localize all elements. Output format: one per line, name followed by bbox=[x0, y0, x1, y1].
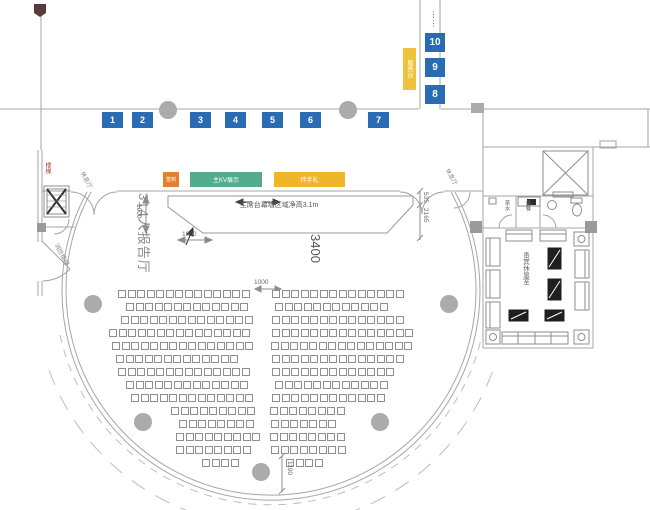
seat bbox=[137, 290, 145, 298]
seat bbox=[361, 303, 369, 311]
seat bbox=[221, 381, 229, 389]
logo-icon bbox=[34, 4, 46, 17]
seat bbox=[126, 303, 134, 311]
seat bbox=[282, 368, 290, 376]
seat bbox=[367, 355, 375, 363]
seat bbox=[160, 342, 168, 350]
seat bbox=[205, 433, 213, 441]
seat bbox=[128, 368, 136, 376]
pantry-label: 备餐 bbox=[524, 200, 530, 211]
seat bbox=[310, 368, 318, 376]
seat bbox=[376, 342, 384, 350]
seat bbox=[358, 394, 366, 402]
seat bbox=[185, 368, 193, 376]
seat bbox=[386, 368, 394, 376]
seat bbox=[147, 368, 155, 376]
seat bbox=[367, 368, 375, 376]
seat bbox=[156, 368, 164, 376]
seat bbox=[202, 459, 210, 467]
seat bbox=[214, 329, 222, 337]
seat bbox=[118, 368, 126, 376]
seat bbox=[145, 303, 153, 311]
seat bbox=[116, 355, 124, 363]
elevator-shaft bbox=[543, 151, 588, 197]
seat bbox=[173, 355, 181, 363]
seat bbox=[327, 407, 335, 415]
seat bbox=[396, 355, 404, 363]
seat bbox=[217, 342, 225, 350]
seat bbox=[145, 381, 153, 389]
seat bbox=[200, 407, 208, 415]
seat bbox=[272, 355, 280, 363]
seat bbox=[131, 316, 139, 324]
seat bbox=[147, 290, 155, 298]
seat bbox=[318, 433, 326, 441]
seat bbox=[342, 303, 350, 311]
seat bbox=[319, 420, 327, 428]
seat bbox=[179, 342, 187, 350]
seat bbox=[233, 433, 241, 441]
seat bbox=[275, 381, 283, 389]
seat bbox=[214, 446, 222, 454]
coffee-tables bbox=[509, 248, 564, 321]
seat bbox=[377, 329, 385, 337]
seat bbox=[300, 342, 308, 350]
seat bbox=[348, 290, 356, 298]
seat bbox=[164, 355, 172, 363]
zone-service-desk: 服务台 bbox=[403, 48, 416, 90]
seat bbox=[351, 303, 359, 311]
seat bbox=[396, 290, 404, 298]
seat bbox=[320, 368, 328, 376]
seat bbox=[204, 290, 212, 298]
seat bbox=[243, 446, 251, 454]
seat bbox=[198, 342, 206, 350]
booth-3: 3 bbox=[190, 112, 211, 128]
seat bbox=[395, 342, 403, 350]
seat bbox=[272, 329, 280, 337]
seat bbox=[119, 329, 127, 337]
seat bbox=[109, 329, 117, 337]
dim-stage-right-lower: 2165 bbox=[422, 208, 429, 222]
seat bbox=[300, 446, 308, 454]
seat bbox=[141, 394, 149, 402]
seat bbox=[245, 394, 253, 402]
booth-8: 8 bbox=[425, 85, 445, 104]
seat bbox=[270, 433, 278, 441]
seat bbox=[319, 342, 327, 350]
seat bbox=[300, 420, 308, 428]
booth-4: 4 bbox=[225, 112, 246, 128]
seat bbox=[342, 381, 350, 389]
seat bbox=[226, 394, 234, 402]
seat bbox=[157, 329, 165, 337]
seat bbox=[377, 355, 385, 363]
seat bbox=[338, 342, 346, 350]
seat bbox=[195, 446, 203, 454]
seat bbox=[183, 381, 191, 389]
seat bbox=[315, 459, 323, 467]
seat bbox=[223, 290, 231, 298]
seat bbox=[186, 446, 194, 454]
seat bbox=[281, 342, 289, 350]
corridor-ellipsis: ⋮⋮ bbox=[429, 10, 437, 28]
seat bbox=[282, 316, 290, 324]
tea-room-label: 茶水 bbox=[503, 200, 509, 211]
seat bbox=[291, 368, 299, 376]
seat bbox=[217, 394, 225, 402]
seat bbox=[227, 420, 235, 428]
seat bbox=[310, 394, 318, 402]
seat bbox=[236, 394, 244, 402]
stage-height-note: 主席台幕墙区域净高3.1m bbox=[213, 202, 345, 209]
seat bbox=[339, 355, 347, 363]
seat bbox=[238, 407, 246, 415]
seat bbox=[351, 381, 359, 389]
seat bbox=[235, 316, 243, 324]
seat bbox=[301, 329, 309, 337]
seat bbox=[169, 342, 177, 350]
seat bbox=[320, 355, 328, 363]
seat bbox=[280, 407, 288, 415]
dim-stage-right-upper: 535 bbox=[422, 192, 429, 203]
booth-6: 6 bbox=[300, 112, 321, 128]
seat bbox=[329, 316, 337, 324]
seat bbox=[155, 381, 163, 389]
seat bbox=[221, 303, 229, 311]
seat bbox=[305, 459, 313, 467]
seat bbox=[166, 290, 174, 298]
seat bbox=[197, 316, 205, 324]
seat bbox=[309, 342, 317, 350]
seat bbox=[141, 342, 149, 350]
seat bbox=[304, 381, 312, 389]
seat bbox=[282, 329, 290, 337]
seat bbox=[140, 316, 148, 324]
seat bbox=[404, 342, 412, 350]
seat bbox=[174, 303, 182, 311]
seat bbox=[193, 381, 201, 389]
seat bbox=[171, 407, 179, 415]
seat bbox=[137, 368, 145, 376]
seat bbox=[169, 316, 177, 324]
seat bbox=[320, 290, 328, 298]
seat bbox=[296, 459, 304, 467]
seat bbox=[186, 433, 194, 441]
seat bbox=[339, 329, 347, 337]
booth-10: 10 bbox=[425, 33, 445, 52]
seat bbox=[174, 381, 182, 389]
seat bbox=[150, 394, 158, 402]
seat bbox=[370, 381, 378, 389]
seat bbox=[337, 407, 345, 415]
seat bbox=[232, 290, 240, 298]
seat bbox=[252, 433, 260, 441]
seat bbox=[212, 459, 220, 467]
booth-1: 1 bbox=[102, 112, 123, 128]
seat bbox=[339, 316, 347, 324]
seat bbox=[221, 459, 229, 467]
seat bbox=[240, 381, 248, 389]
seat bbox=[205, 446, 213, 454]
seat bbox=[236, 420, 244, 428]
seat bbox=[282, 394, 290, 402]
seat bbox=[128, 290, 136, 298]
seat bbox=[189, 420, 197, 428]
dim-stage-left: 1000 bbox=[135, 204, 142, 218]
seat bbox=[348, 329, 356, 337]
seat bbox=[232, 368, 240, 376]
seat bbox=[377, 316, 385, 324]
seat bbox=[202, 355, 210, 363]
seat bbox=[231, 381, 239, 389]
seat bbox=[339, 368, 347, 376]
seat bbox=[181, 407, 189, 415]
seat bbox=[329, 368, 337, 376]
dim-hall-width: 3400 bbox=[309, 234, 322, 263]
seat bbox=[271, 420, 279, 428]
seat bbox=[190, 407, 198, 415]
seat bbox=[122, 342, 130, 350]
seat bbox=[291, 290, 299, 298]
seat bbox=[175, 368, 183, 376]
seat bbox=[299, 407, 307, 415]
seat bbox=[329, 329, 337, 337]
seat bbox=[195, 433, 203, 441]
seat bbox=[291, 394, 299, 402]
seat bbox=[179, 394, 187, 402]
seat bbox=[367, 329, 375, 337]
seat bbox=[332, 303, 340, 311]
seat bbox=[309, 420, 317, 428]
seat bbox=[154, 355, 162, 363]
seat bbox=[320, 394, 328, 402]
seat bbox=[204, 368, 212, 376]
seat bbox=[164, 303, 172, 311]
seat bbox=[294, 381, 302, 389]
seat bbox=[211, 355, 219, 363]
seat bbox=[339, 394, 347, 402]
seat bbox=[226, 316, 234, 324]
seat bbox=[361, 381, 369, 389]
seat bbox=[281, 446, 289, 454]
seat bbox=[198, 394, 206, 402]
seat bbox=[212, 303, 220, 311]
seat bbox=[166, 329, 174, 337]
seat bbox=[147, 329, 155, 337]
seat bbox=[183, 355, 191, 363]
seat bbox=[323, 381, 331, 389]
seat bbox=[386, 355, 394, 363]
seat bbox=[337, 433, 345, 441]
zone-kv-display: 主KV展示 bbox=[190, 172, 262, 187]
seat bbox=[175, 290, 183, 298]
seat bbox=[179, 420, 187, 428]
seat bbox=[338, 446, 346, 454]
seat bbox=[230, 355, 238, 363]
booth-2: 2 bbox=[132, 112, 153, 128]
seat bbox=[294, 303, 302, 311]
seat bbox=[370, 303, 378, 311]
seat bbox=[405, 329, 413, 337]
seat bbox=[301, 316, 309, 324]
seat bbox=[313, 381, 321, 389]
seat bbox=[272, 368, 280, 376]
seat bbox=[319, 446, 327, 454]
seat bbox=[271, 342, 279, 350]
seat bbox=[164, 381, 172, 389]
seat bbox=[328, 420, 336, 428]
seat bbox=[128, 329, 136, 337]
seat bbox=[156, 290, 164, 298]
seat bbox=[348, 316, 356, 324]
seat bbox=[310, 355, 318, 363]
seat bbox=[136, 303, 144, 311]
seat bbox=[272, 290, 280, 298]
seat bbox=[358, 290, 366, 298]
seat bbox=[245, 342, 253, 350]
seat bbox=[367, 290, 375, 298]
seat bbox=[204, 329, 212, 337]
seat bbox=[185, 290, 193, 298]
seat bbox=[348, 368, 356, 376]
vip-lounge-label: 贵宾休息室 bbox=[521, 252, 528, 285]
seat bbox=[240, 303, 248, 311]
seat bbox=[198, 420, 206, 428]
seat bbox=[310, 290, 318, 298]
seat bbox=[245, 316, 253, 324]
seat bbox=[308, 407, 316, 415]
seat bbox=[358, 316, 366, 324]
seat bbox=[202, 381, 210, 389]
seat bbox=[202, 303, 210, 311]
seat bbox=[159, 316, 167, 324]
seat bbox=[318, 407, 326, 415]
seat bbox=[328, 446, 336, 454]
seat bbox=[224, 446, 232, 454]
seat bbox=[188, 394, 196, 402]
seat bbox=[138, 329, 146, 337]
booth-5: 5 bbox=[262, 112, 283, 128]
seat bbox=[207, 394, 215, 402]
seat bbox=[272, 316, 280, 324]
seat bbox=[357, 342, 365, 350]
seat bbox=[224, 433, 232, 441]
seat bbox=[135, 355, 143, 363]
seat bbox=[223, 329, 231, 337]
seat bbox=[160, 394, 168, 402]
seat bbox=[185, 329, 193, 337]
seat bbox=[150, 316, 158, 324]
seat bbox=[169, 394, 177, 402]
seat bbox=[386, 316, 394, 324]
seat bbox=[176, 433, 184, 441]
seat bbox=[289, 433, 297, 441]
seat bbox=[216, 316, 224, 324]
dim-bottom-offset: 1190 bbox=[286, 461, 293, 475]
seat bbox=[281, 420, 289, 428]
seat bbox=[396, 329, 404, 337]
seat bbox=[231, 459, 239, 467]
seat bbox=[272, 394, 280, 402]
seat bbox=[285, 381, 293, 389]
seat bbox=[155, 303, 163, 311]
seat bbox=[291, 316, 299, 324]
seat bbox=[366, 342, 374, 350]
seat bbox=[290, 420, 298, 428]
seat bbox=[188, 316, 196, 324]
seat bbox=[329, 290, 337, 298]
seat bbox=[183, 303, 191, 311]
seat bbox=[358, 368, 366, 376]
seat bbox=[242, 329, 250, 337]
seat bbox=[291, 329, 299, 337]
seat bbox=[313, 303, 321, 311]
seat bbox=[242, 290, 250, 298]
seat bbox=[131, 342, 139, 350]
seat bbox=[290, 342, 298, 350]
dim-stage-bottom: 1000 bbox=[182, 232, 196, 239]
seat bbox=[291, 355, 299, 363]
seat bbox=[271, 446, 279, 454]
seat bbox=[396, 316, 404, 324]
seat bbox=[247, 407, 255, 415]
seat bbox=[213, 368, 221, 376]
floorplan-canvas: 1 2 3 4 5 6 7 8 9 10 签到 主KV展示 伴手礼 服务台 31… bbox=[0, 0, 650, 510]
seat bbox=[304, 303, 312, 311]
seat bbox=[166, 368, 174, 376]
stairwell-label: 楼梯 bbox=[44, 162, 50, 174]
zone-gift: 伴手礼 bbox=[274, 172, 345, 187]
seat bbox=[207, 342, 215, 350]
seat bbox=[214, 433, 222, 441]
seat bbox=[194, 368, 202, 376]
seat bbox=[280, 433, 288, 441]
seat bbox=[308, 433, 316, 441]
seat bbox=[282, 355, 290, 363]
seat bbox=[212, 381, 220, 389]
seat bbox=[310, 316, 318, 324]
seat bbox=[285, 303, 293, 311]
seat bbox=[112, 342, 120, 350]
seat bbox=[299, 433, 307, 441]
seat bbox=[188, 342, 196, 350]
seat bbox=[231, 303, 239, 311]
seat bbox=[328, 342, 336, 350]
seat bbox=[236, 342, 244, 350]
seat bbox=[178, 316, 186, 324]
seat bbox=[329, 394, 337, 402]
seat bbox=[332, 381, 340, 389]
seat bbox=[233, 446, 241, 454]
seat bbox=[323, 303, 331, 311]
seat bbox=[194, 290, 202, 298]
seat bbox=[131, 394, 139, 402]
seat bbox=[289, 407, 297, 415]
seat bbox=[377, 394, 385, 402]
seat bbox=[301, 368, 309, 376]
seat bbox=[329, 355, 337, 363]
seat bbox=[339, 290, 347, 298]
seat bbox=[282, 290, 290, 298]
seat bbox=[377, 290, 385, 298]
seat bbox=[195, 329, 203, 337]
seat bbox=[310, 329, 318, 337]
seat bbox=[377, 368, 385, 376]
seat bbox=[233, 329, 241, 337]
seat bbox=[320, 329, 328, 337]
seat bbox=[208, 420, 216, 428]
